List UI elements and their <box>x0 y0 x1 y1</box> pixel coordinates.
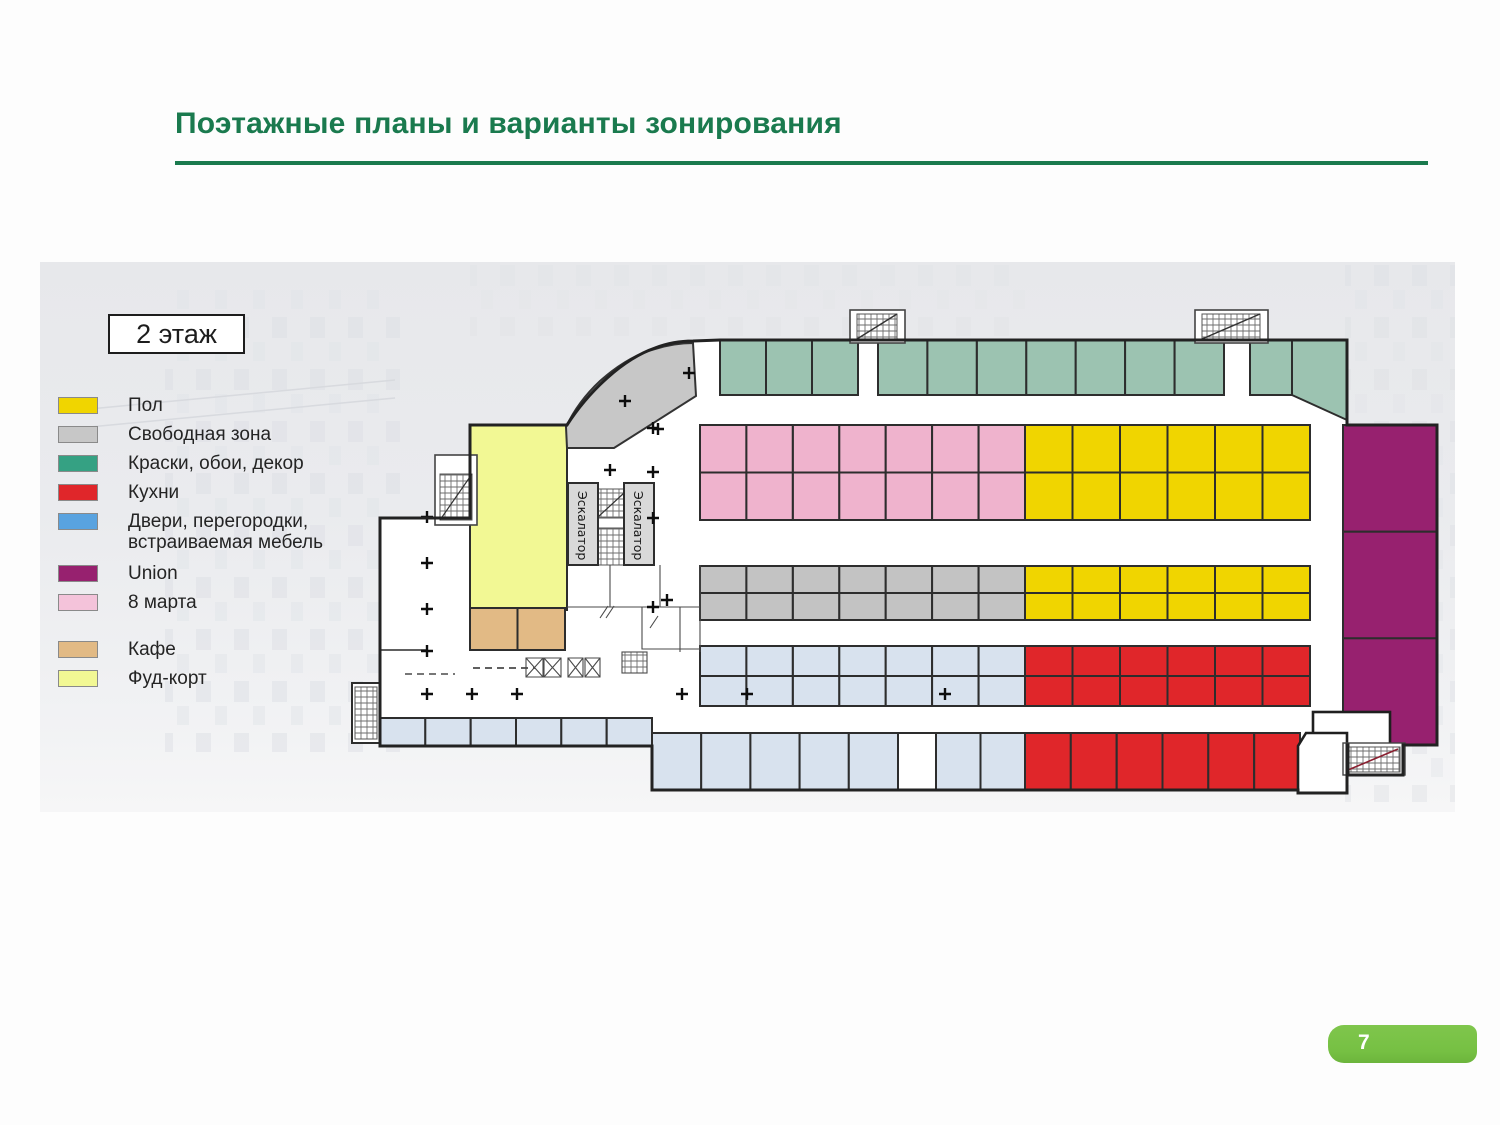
stairwell-bottom-right <box>1343 743 1405 775</box>
legend: ПолСвободная зонаКраски, обои, декорКухн… <box>58 395 388 697</box>
legend-doors: Двери, перегородки, встраиваемая мебель <box>58 511 388 553</box>
floor-label: 2 этаж <box>108 314 245 354</box>
march8-zone <box>700 425 1025 520</box>
union-zone <box>1343 425 1437 745</box>
page-number: 7 <box>1358 1031 1370 1055</box>
legend-free-zone: Свободная зона <box>58 424 388 445</box>
legend-food-court: Фуд-корт <box>58 668 388 689</box>
legend-free-zone-swatch <box>58 426 98 443</box>
floor-zone-lower <box>1025 566 1310 620</box>
doors-bottom-b <box>936 733 1025 790</box>
escalator-label-2: Эскалатор <box>631 491 646 560</box>
page-title: Поэтажные планы и варианты зонирования <box>175 107 842 141</box>
legend-floor: Пол <box>58 395 388 416</box>
bottom-white-cell <box>898 733 936 790</box>
legend-cafe: Кафе <box>58 639 388 660</box>
food-court-zone <box>470 425 567 610</box>
legend-union-swatch <box>58 565 98 582</box>
legend-kitchens-label: Кухни <box>128 482 179 503</box>
legend-floor-swatch <box>58 397 98 414</box>
paints-row-c <box>1250 340 1292 395</box>
legend-march8: 8 марта <box>58 592 388 613</box>
floor-plan-image: Эскалатор Эскалатор <box>40 262 1455 812</box>
slide: Поэтажные планы и варианты зонирования <box>0 0 1500 1125</box>
legend-cafe-swatch <box>58 641 98 658</box>
legend-paints: Краски, обои, декор <box>58 453 388 474</box>
free-zone-row <box>700 566 1025 620</box>
legend-paints-swatch <box>58 455 98 472</box>
legend-union: Union <box>58 563 388 584</box>
legend-doors-swatch <box>58 513 98 530</box>
legend-free-zone-label: Свободная зона <box>128 424 271 445</box>
doors-bottom-a <box>652 733 898 790</box>
legend-doors-label: Двери, перегородки, встраиваемая мебель <box>128 511 323 553</box>
legend-march8-swatch <box>58 594 98 611</box>
legend-kitchens-swatch <box>58 484 98 501</box>
kitchens-zone-upper <box>1025 646 1310 706</box>
doors-zone-upper <box>700 646 1025 706</box>
escalator-label-1: Эскалатор <box>575 491 590 560</box>
legend-paints-label: Краски, обои, декор <box>128 453 304 474</box>
legend-food-court-swatch <box>58 670 98 687</box>
cafe-zone <box>470 608 565 650</box>
legend-cafe-label: Кафе <box>128 639 176 660</box>
title-underline-rule <box>175 161 1428 165</box>
legend-floor-label: Пол <box>128 395 163 416</box>
page-number-badge: 7 <box>1328 1025 1477 1063</box>
kitchens-bottom <box>1025 733 1300 790</box>
legend-union-label: Union <box>128 563 178 584</box>
stairwell-top-left <box>850 310 905 343</box>
legend-food-court-label: Фуд-корт <box>128 668 207 689</box>
legend-kitchens: Кухни <box>58 482 388 503</box>
legend-march8-label: 8 марта <box>128 592 197 613</box>
floor-zone-upper <box>1025 425 1310 520</box>
paints-row-a <box>720 340 858 395</box>
paints-row-b <box>878 340 1224 395</box>
stairwell-top-right <box>1195 310 1268 343</box>
doors-left-row <box>380 718 652 746</box>
